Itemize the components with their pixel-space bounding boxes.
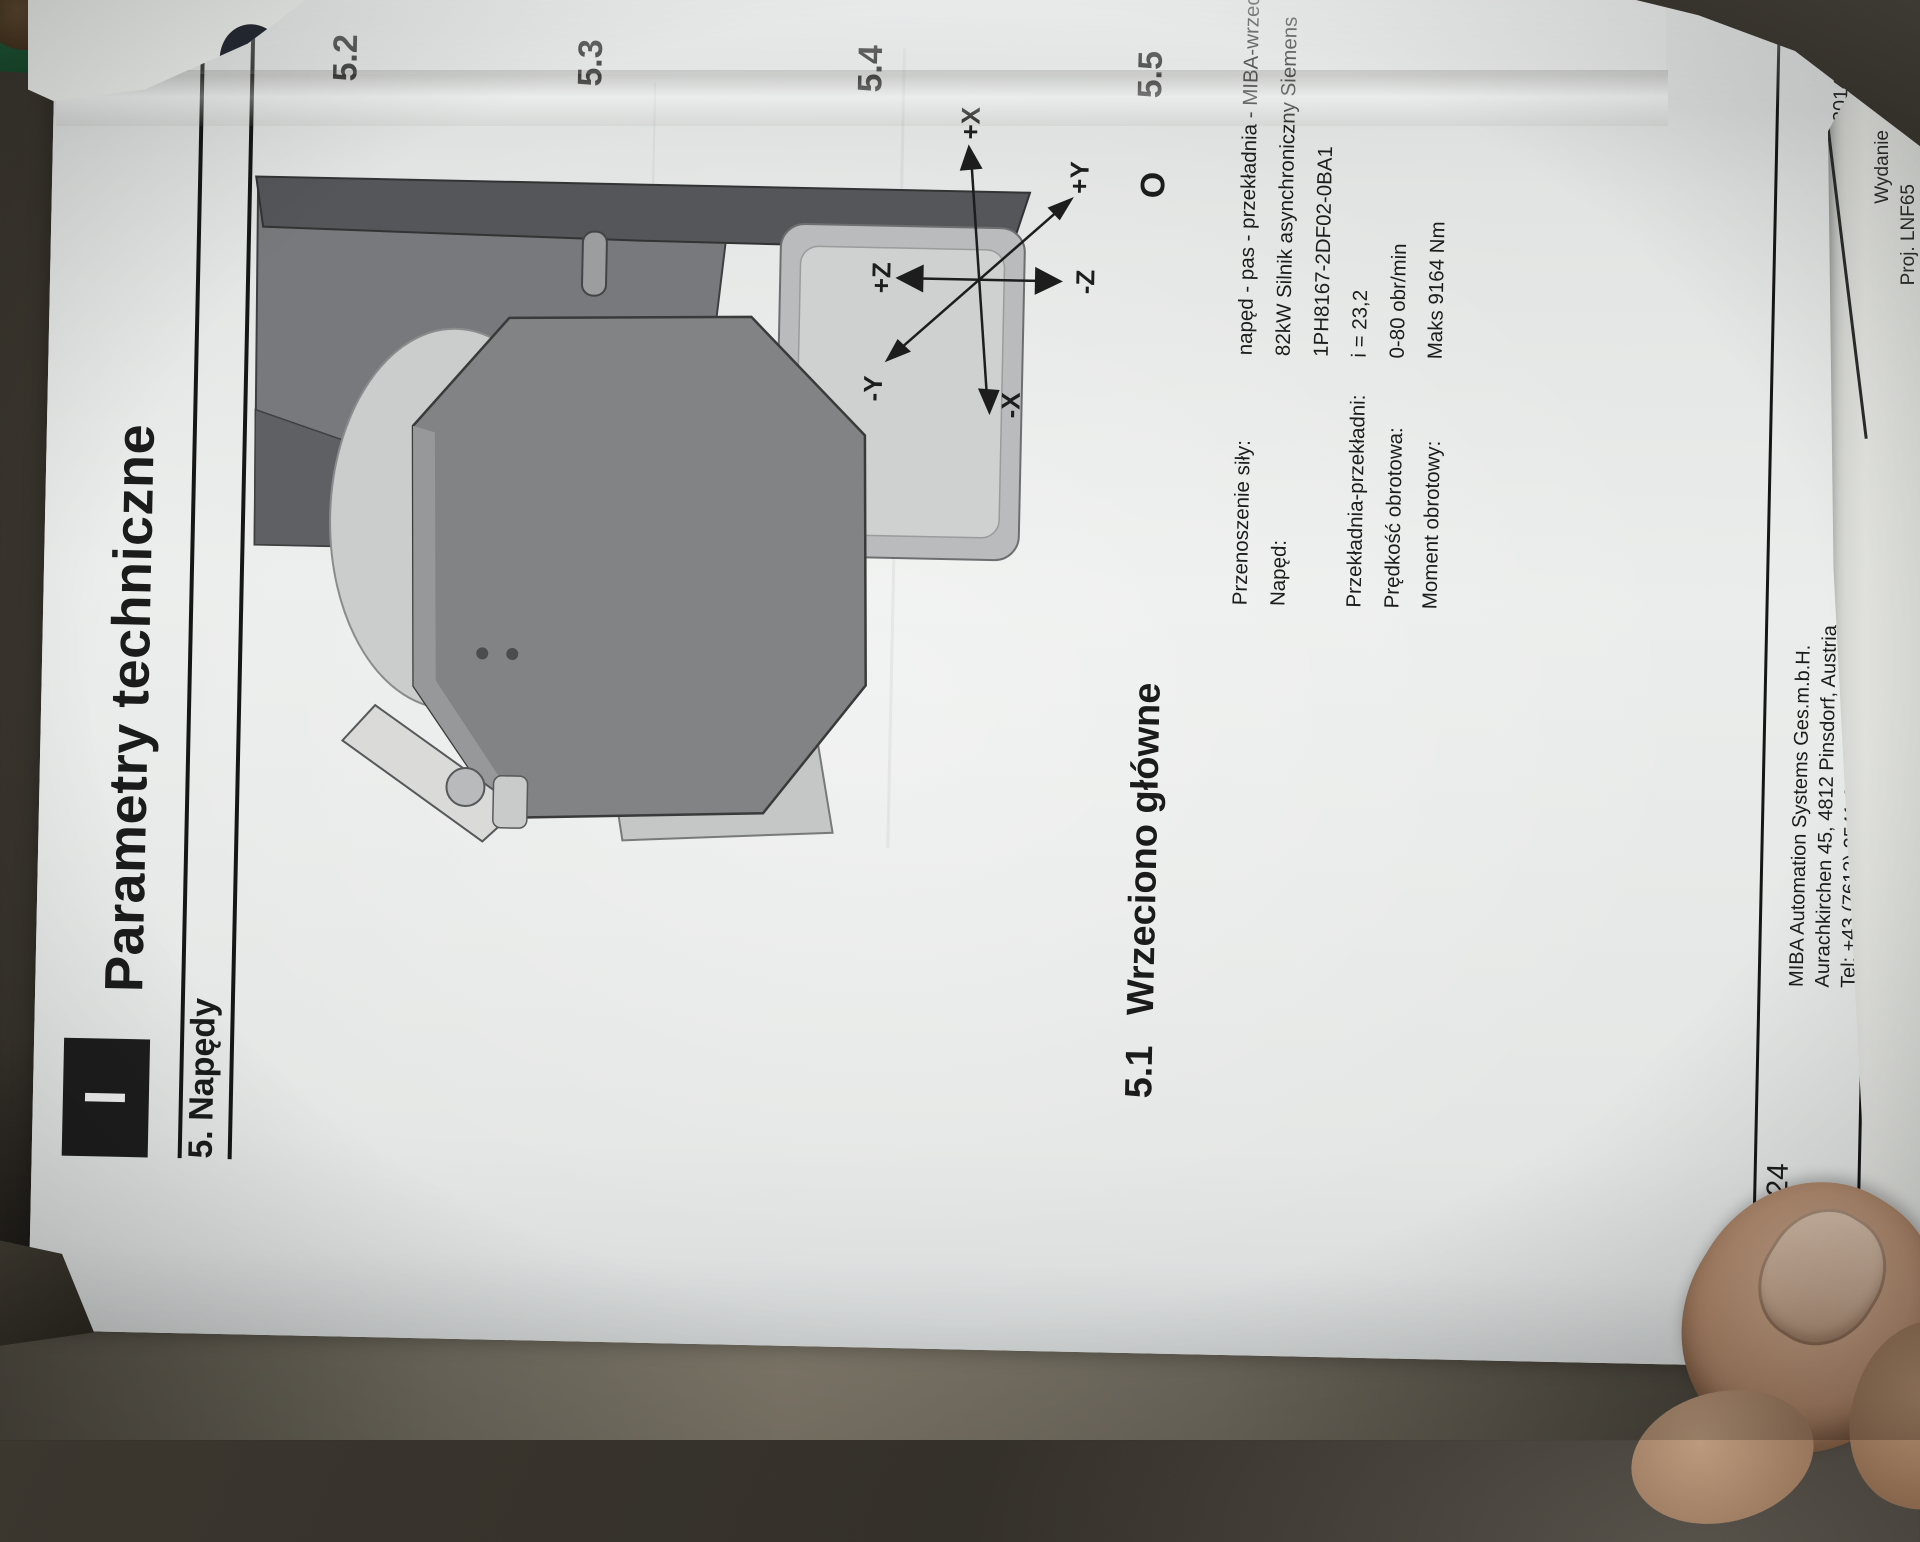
axis-label-z-minus: -Z <box>1070 269 1101 294</box>
spec-label: Przekładnia-przekładni: <box>1342 357 1371 607</box>
axis-label-y-minus: -Y <box>859 375 888 402</box>
spec-value: 82kW Silnik asynchroniczny Siemens <box>1272 16 1303 356</box>
axis-label-y-plus: +Y <box>1064 161 1095 194</box>
header-box-mark: I <box>77 1089 135 1106</box>
section-stub-54: 5.4 <box>851 45 891 93</box>
section-stub-52: 5.2 <box>326 34 366 82</box>
spec-label: Napęd: <box>1266 356 1295 606</box>
axis-label-x-minus: -X <box>995 391 1026 418</box>
header-section-box: I <box>62 1038 150 1158</box>
spec-label: Przenoszenie siły: <box>1228 355 1257 605</box>
spec-value: Maks 9164 Nm <box>1424 221 1451 359</box>
spec-label: Prędkość obrotowa: <box>1380 358 1409 608</box>
spec-row: Moment obrotowy: Maks 9164 Nm <box>1418 0 1457 609</box>
spec-row: Przekładnia-przekładni: i = 23,2 <box>1342 0 1381 608</box>
section-stub-55: 5.5 <box>1131 51 1171 99</box>
axis-label-z-plus: +Z <box>866 262 897 294</box>
spec-value: i = 23,2 <box>1348 290 1373 358</box>
spec-row: Napęd: 82kW Silnik asynchroniczny Siemen… <box>1266 0 1305 606</box>
manual-page: I Parametry techniczne 5. Napędy 5.2 5.3… <box>28 0 1906 1369</box>
spec-value-line2: 1PH8167-2DF02-0BA1 <box>1310 146 1338 357</box>
header-rule-top <box>178 0 209 1158</box>
page-title: Parametry techniczne <box>93 423 167 992</box>
subsection-number: 5.1 <box>1118 1045 1162 1099</box>
spec-row: Prędkość obrotowa: 0-80 obr/min <box>1380 0 1419 609</box>
underpage-project-fragment: Proj. LNF65 <box>1898 184 1920 285</box>
subsection-heading: 5.1 Wrzeciono główne <box>1118 682 1170 1099</box>
axis-label-x-plus: +X <box>955 106 986 140</box>
footer-rule-top <box>1753 0 1783 1206</box>
spec-label: Moment obrotowy: <box>1418 359 1447 609</box>
thumb-nail <box>1736 1187 1909 1367</box>
chapter-heading: 5. Napędy <box>182 998 224 1159</box>
axes-diagram: +Z -Z +X -X +Y -Y <box>859 97 1136 423</box>
underpage-edition-fragment: Wydanie <box>1872 130 1894 204</box>
subsection-title: Wrzeciono główne <box>1120 682 1170 1016</box>
spec-row: Przenoszenie siły: napęd - pas - przekła… <box>1228 0 1267 605</box>
section-stub-55-title-fragment: O <box>1134 171 1174 198</box>
spec-value: napęd - pas - przekładnia - MIBA-wrzecio… <box>1234 0 1266 356</box>
spec-value: 0-80 obr/min <box>1386 243 1412 359</box>
section-stub-53: 5.3 <box>571 39 611 87</box>
